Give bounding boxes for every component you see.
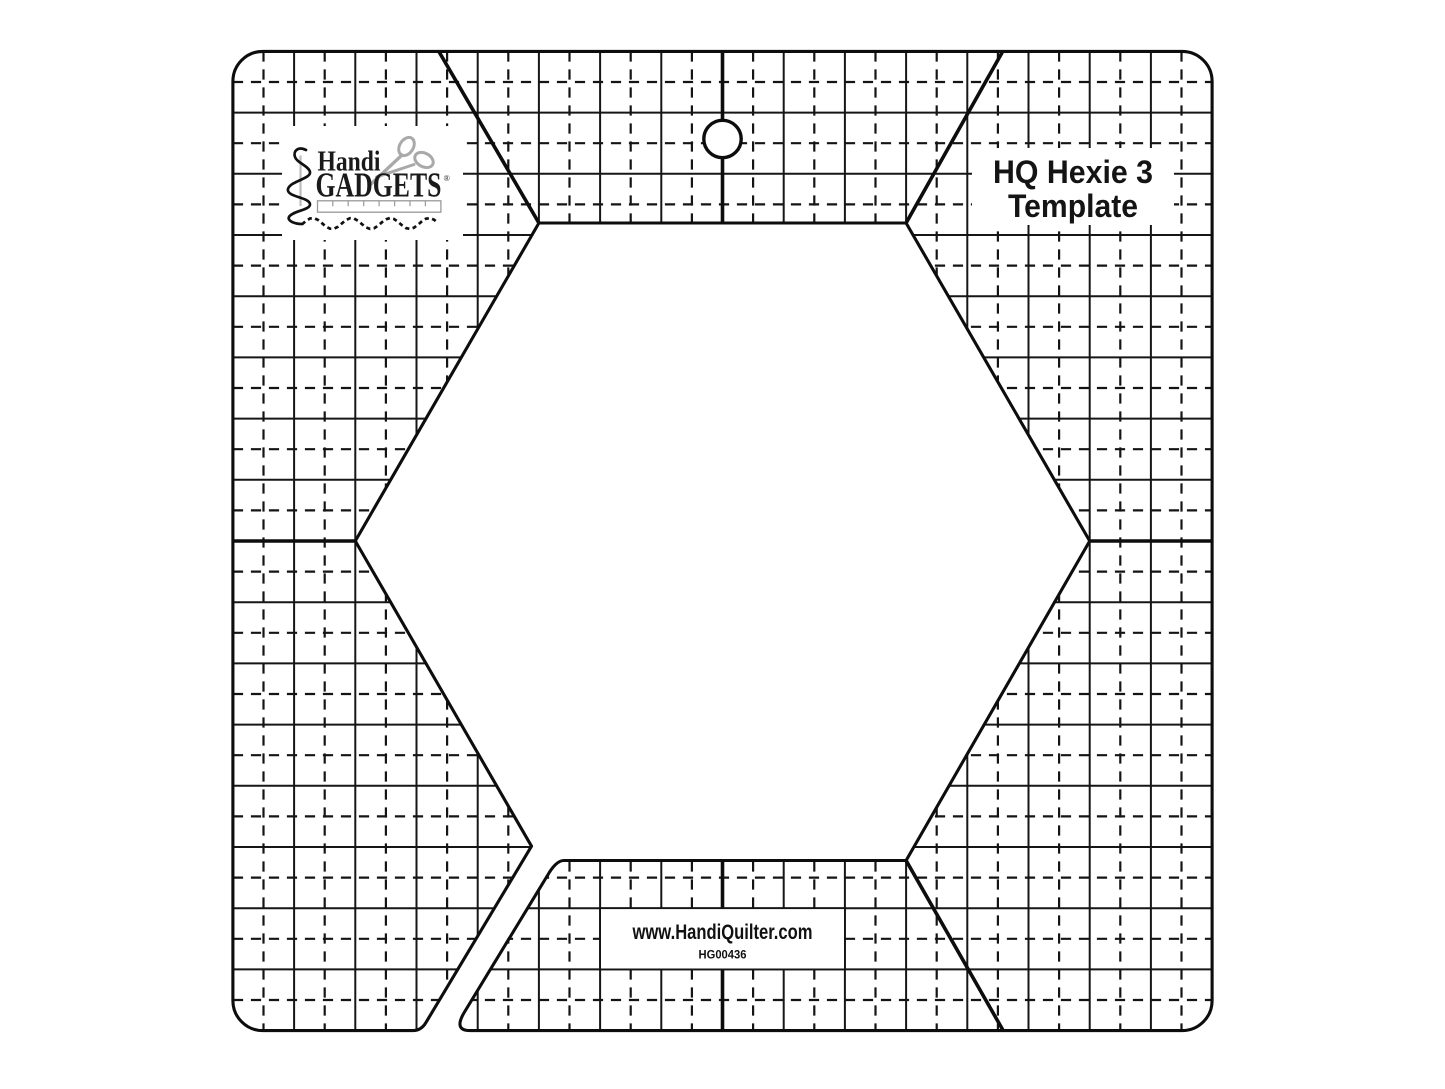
- svg-text:www.HandiQuilter.com: www.HandiQuilter.com: [632, 921, 813, 944]
- svg-text:HG00436: HG00436: [699, 949, 748, 962]
- svg-text:GADGETS: GADGETS: [316, 166, 442, 205]
- svg-text:®: ®: [444, 173, 451, 183]
- svg-text:HQ Hexie 3: HQ Hexie 3: [993, 154, 1153, 190]
- svg-text:Template: Template: [1008, 188, 1138, 224]
